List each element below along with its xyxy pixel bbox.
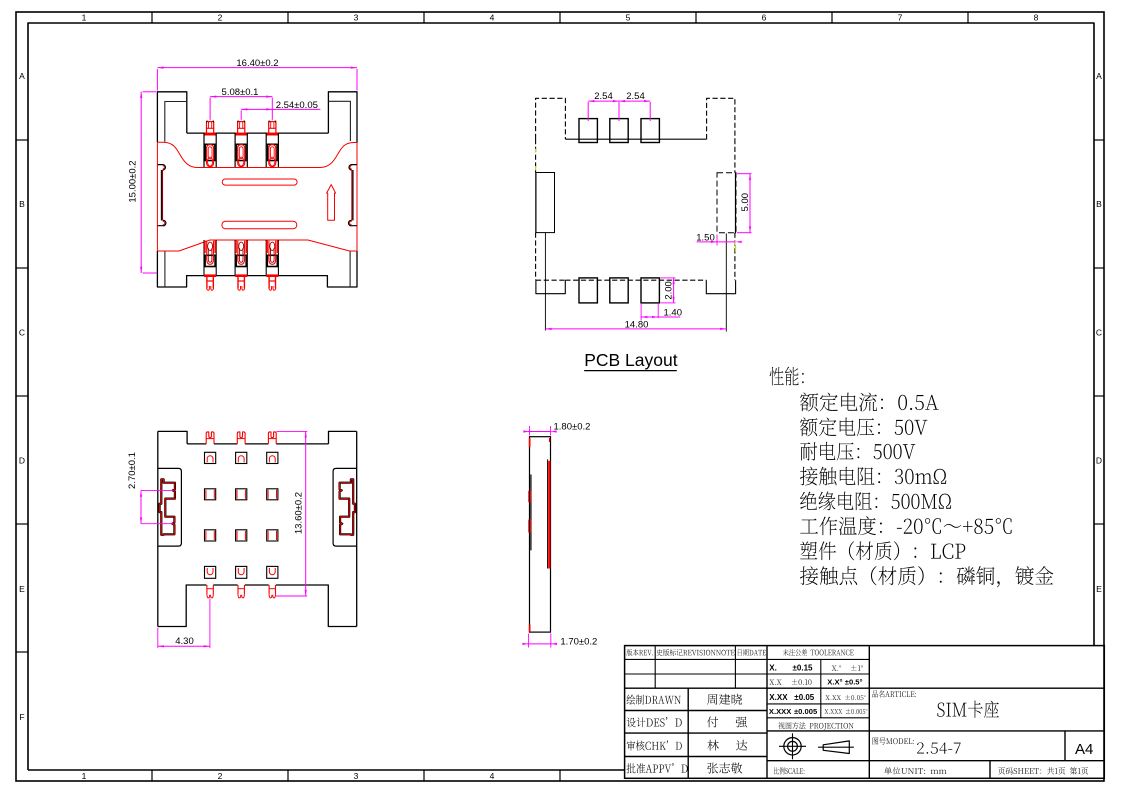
- svg-text:15.00±0.2: 15.00±0.2: [127, 160, 138, 202]
- svg-text:4: 4: [490, 771, 495, 781]
- svg-text:1: 1: [82, 13, 87, 23]
- svg-text:A: A: [1096, 71, 1102, 81]
- svg-text:4: 4: [490, 13, 495, 23]
- svg-text:X.XX: X.XX: [769, 693, 788, 702]
- svg-text:X.X°: X.X°: [827, 678, 842, 687]
- svg-text:A4: A4: [1075, 741, 1093, 758]
- svg-text:5.08±0.1: 5.08±0.1: [222, 87, 259, 98]
- svg-text:X.XXX: X.XXX: [769, 707, 791, 716]
- svg-text:2.70±0.1: 2.70±0.1: [127, 452, 138, 489]
- svg-text:1: 1: [82, 771, 87, 781]
- svg-text:2.54: 2.54: [626, 91, 645, 102]
- svg-text:±0.005: ±0.005: [794, 707, 818, 716]
- svg-text:±0.05: ±0.05: [794, 693, 815, 702]
- svg-text:2.54: 2.54: [594, 91, 613, 102]
- svg-text:B: B: [1096, 199, 1102, 209]
- svg-text:13.60±0.2: 13.60±0.2: [294, 492, 305, 534]
- svg-text:C: C: [1096, 327, 1102, 337]
- svg-text:D: D: [19, 456, 25, 466]
- svg-text:2.00: 2.00: [664, 281, 675, 300]
- svg-text:1.80±0.2: 1.80±0.2: [554, 421, 591, 432]
- svg-text:16.40±0.2: 16.40±0.2: [236, 58, 278, 69]
- svg-text:8: 8: [1034, 13, 1039, 23]
- svg-text:3: 3: [354, 771, 359, 781]
- svg-text:±0.15: ±0.15: [793, 664, 814, 673]
- svg-text:2.54±0.05: 2.54±0.05: [276, 100, 318, 111]
- svg-text:X.: X.: [769, 664, 777, 673]
- svg-text:F: F: [19, 712, 24, 722]
- svg-text:1.70±0.2: 1.70±0.2: [560, 637, 597, 648]
- svg-text:5: 5: [626, 13, 631, 23]
- svg-text:1.50: 1.50: [696, 232, 715, 243]
- svg-text:±0.5°: ±0.5°: [845, 678, 863, 687]
- svg-text:D: D: [1096, 456, 1102, 466]
- svg-text:3: 3: [354, 13, 359, 23]
- svg-text:4.30: 4.30: [175, 636, 194, 647]
- svg-text:14.80: 14.80: [625, 319, 649, 330]
- svg-text:5.00: 5.00: [740, 193, 751, 212]
- svg-text:6: 6: [762, 13, 767, 23]
- svg-text:2: 2: [218, 13, 223, 23]
- svg-text:B: B: [19, 199, 25, 209]
- svg-text:A: A: [19, 71, 25, 81]
- svg-text:C: C: [19, 327, 25, 337]
- svg-text:7: 7: [898, 13, 903, 23]
- svg-text:1.40: 1.40: [664, 307, 683, 318]
- svg-text:PCB Layout: PCB Layout: [584, 350, 678, 370]
- svg-text:E: E: [19, 584, 25, 594]
- svg-text:E: E: [1096, 584, 1102, 594]
- svg-text:2: 2: [218, 771, 223, 781]
